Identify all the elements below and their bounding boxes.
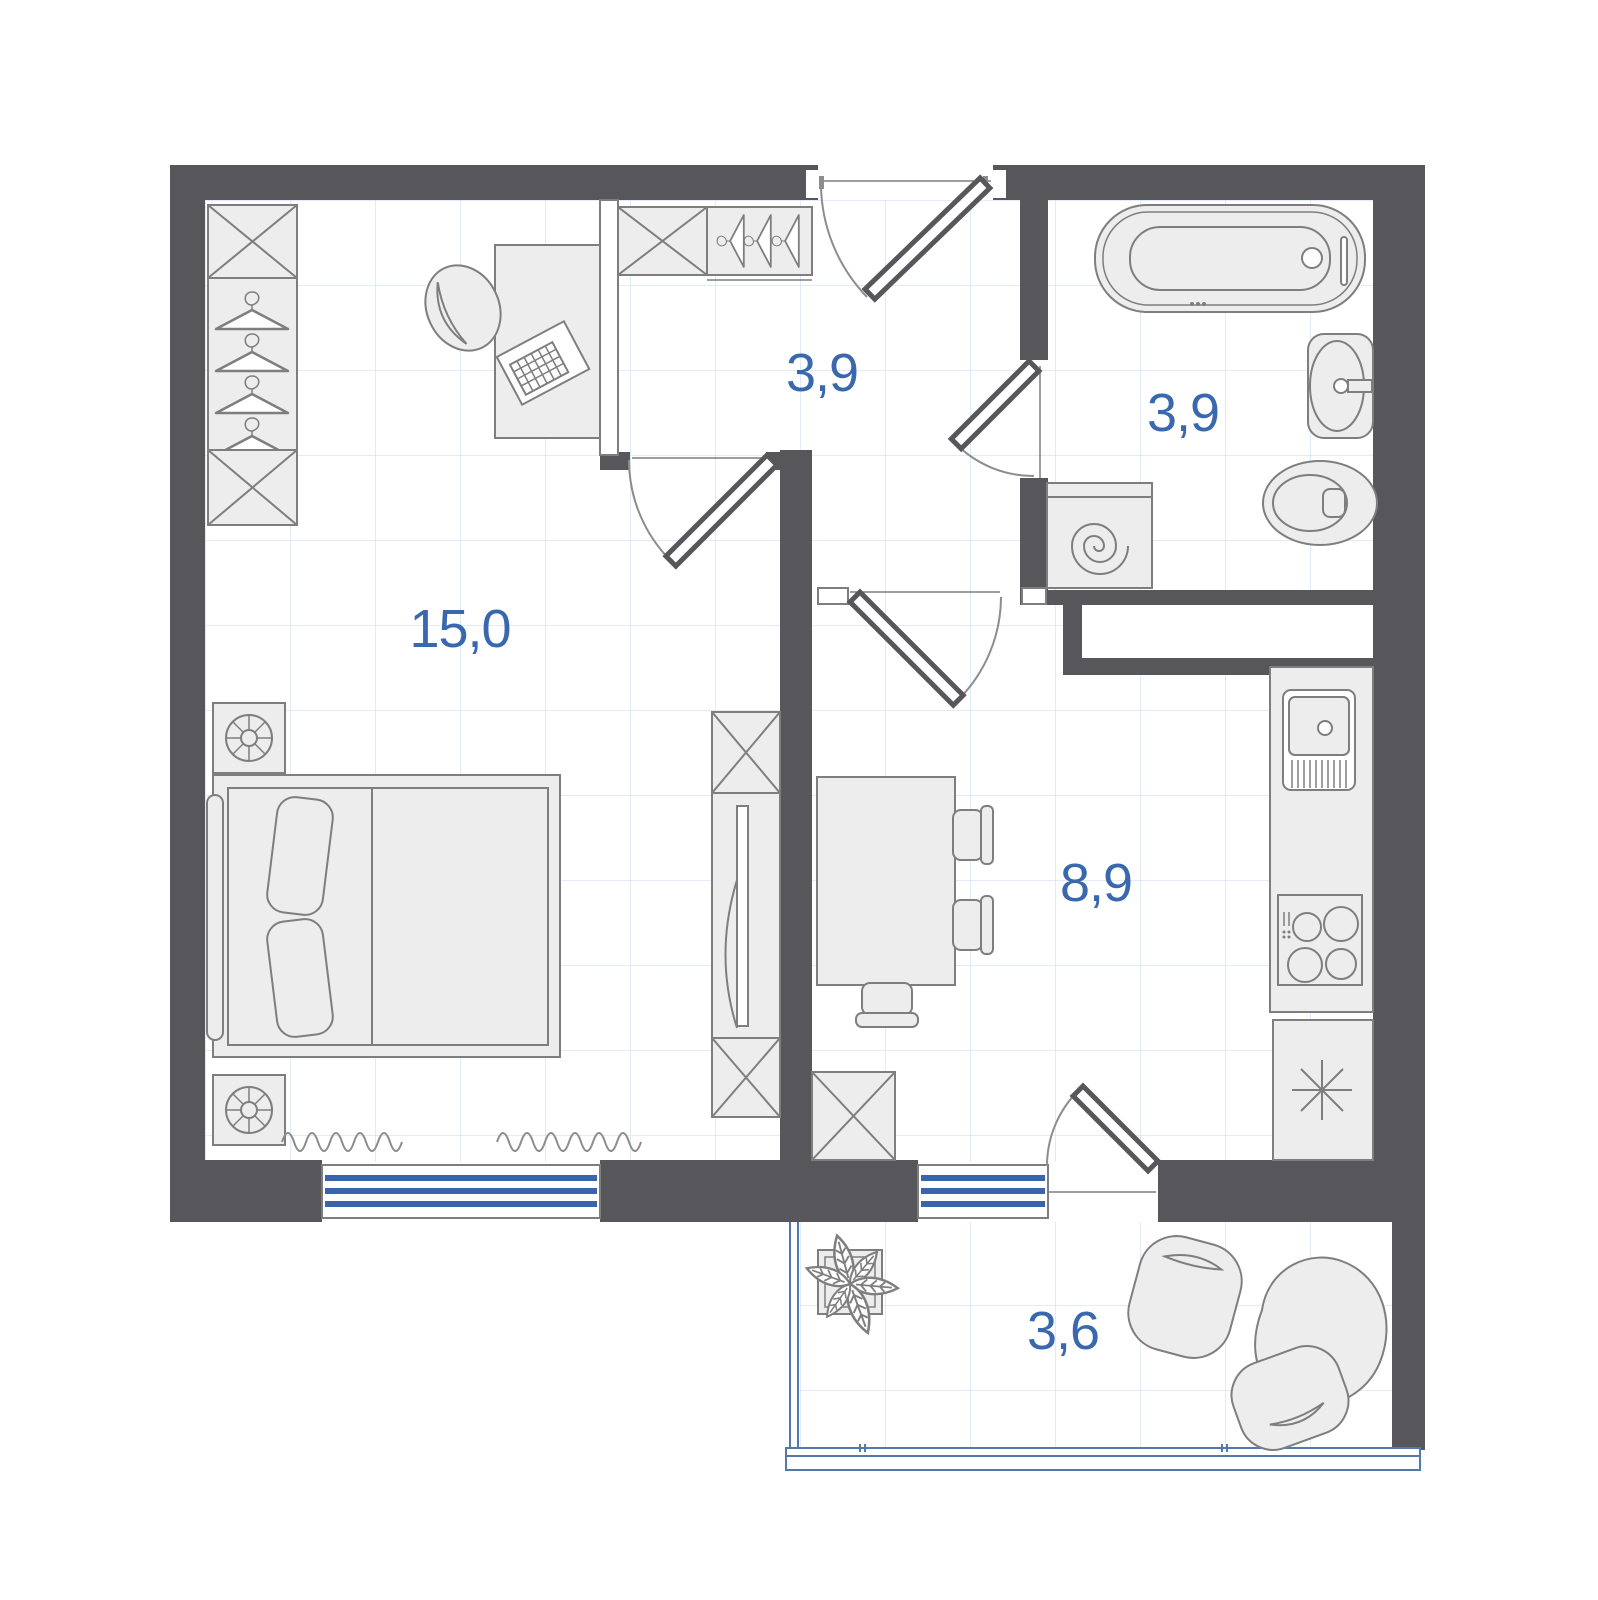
radiator-stripe bbox=[325, 1201, 597, 1207]
floor-plan: 15,0 3,9 3,9 8,9 3,6 bbox=[0, 0, 1598, 1600]
vent-shaft bbox=[1078, 600, 1375, 660]
floor-plan-drawing: 15,0 3,9 3,9 8,9 3,6 bbox=[0, 0, 1598, 1600]
wall-left bbox=[170, 165, 205, 1222]
chair-icon bbox=[953, 896, 993, 954]
wall-hall-bath-bottom bbox=[1020, 478, 1048, 605]
door-jamb bbox=[993, 170, 1006, 198]
balcony-area-label: 3,6 bbox=[1027, 1301, 1099, 1361]
bedroom-window bbox=[322, 1165, 600, 1218]
cabinet-icon bbox=[812, 1072, 895, 1160]
tv-icon bbox=[737, 806, 748, 1026]
wall-bottom-c bbox=[1158, 1160, 1425, 1222]
fridge-icon bbox=[1273, 1020, 1373, 1160]
wall-top-right bbox=[993, 165, 1425, 200]
radiator-stripe bbox=[325, 1175, 597, 1181]
door-jamb bbox=[1022, 588, 1046, 604]
stove-icon bbox=[1278, 895, 1362, 985]
wall-bottom-b bbox=[600, 1160, 918, 1222]
bathroom-area-label: 3,9 bbox=[1147, 383, 1219, 443]
radiator-stripe bbox=[325, 1188, 597, 1194]
radiator-stripe bbox=[921, 1188, 1045, 1194]
bedroom-area-label: 15,0 bbox=[409, 599, 510, 659]
wardrobe-icon bbox=[208, 205, 297, 525]
radiator-stripe bbox=[921, 1175, 1045, 1181]
kitchen-area-label: 8,9 bbox=[1060, 853, 1132, 913]
kitchen-sink-icon bbox=[1283, 690, 1355, 790]
washing-machine-icon bbox=[1047, 483, 1152, 588]
wall-hall-bath-top bbox=[1020, 200, 1048, 360]
balcony-glazing-icon bbox=[790, 1222, 798, 1450]
wall-bath-kitchen bbox=[1020, 590, 1373, 605]
wall-bottom-a bbox=[170, 1160, 322, 1222]
door-jamb bbox=[818, 588, 848, 604]
dining-table-icon bbox=[817, 777, 955, 985]
chair-icon bbox=[856, 983, 918, 1027]
kitchen-window bbox=[918, 1165, 1048, 1218]
double-bed-icon bbox=[207, 775, 560, 1057]
balcony-railing bbox=[786, 1444, 1420, 1470]
wall-balcony-right bbox=[1392, 1222, 1425, 1450]
hallway-area-label: 3,9 bbox=[786, 343, 858, 403]
bathtub-icon bbox=[1095, 205, 1365, 312]
door-jamb bbox=[806, 170, 819, 198]
washbasin-icon bbox=[1308, 334, 1373, 438]
chair-icon bbox=[953, 806, 993, 864]
nightstand-lamp-icon bbox=[213, 1075, 285, 1145]
tv-cabinet-icon bbox=[712, 712, 780, 1117]
wall-bedroom-kitchen bbox=[780, 450, 812, 1162]
wall-top-left bbox=[170, 165, 818, 200]
toilet-icon bbox=[1263, 461, 1377, 545]
radiator-stripe bbox=[921, 1201, 1045, 1207]
partition-bedroom-hall bbox=[600, 200, 618, 455]
nightstand-lamp-icon bbox=[213, 703, 285, 773]
hallway-closet-icon bbox=[618, 207, 812, 280]
